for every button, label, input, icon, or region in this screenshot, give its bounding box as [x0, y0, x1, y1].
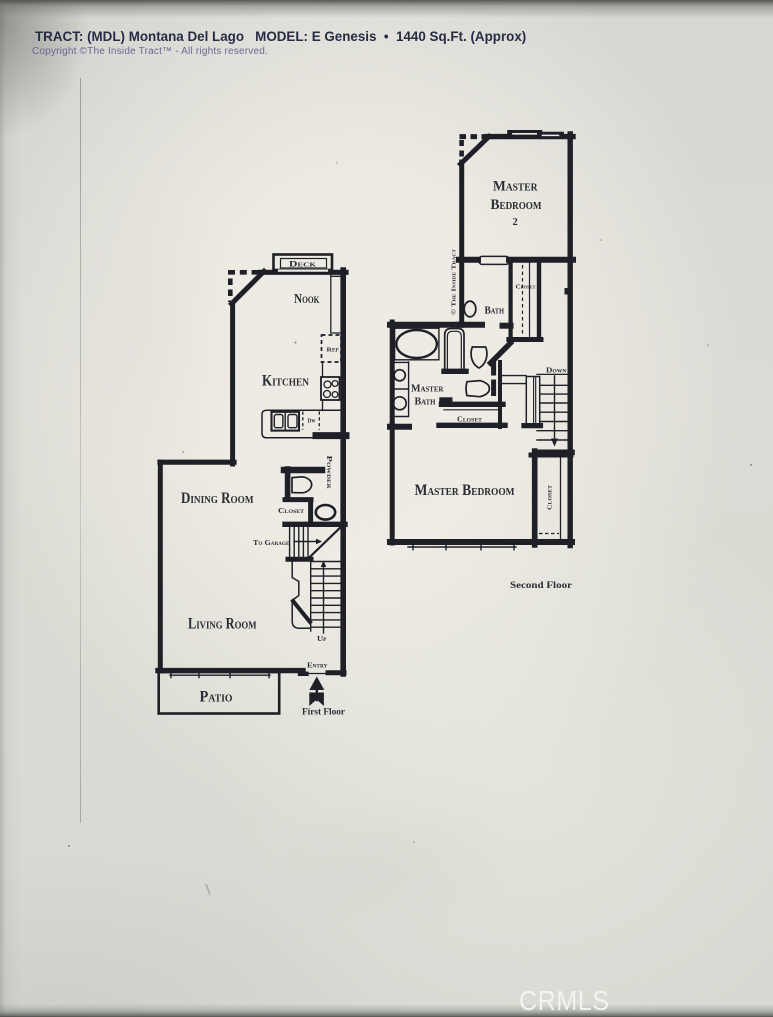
- svg-text:Dw: Dw: [308, 417, 316, 424]
- svg-text:Closet: Closet: [516, 284, 536, 291]
- svg-text:Master Bedroom: Master Bedroom: [415, 482, 516, 499]
- svg-text:Master: Master: [493, 178, 538, 194]
- svg-text:Bedroom: Bedroom: [491, 197, 543, 213]
- svg-text:Ref: Ref: [327, 346, 340, 353]
- svg-text:Patio: Patio: [200, 687, 233, 706]
- svg-text:Master: Master: [411, 384, 444, 395]
- svg-text:Entry: Entry: [307, 661, 328, 670]
- svg-text:Second Floor: Second Floor: [510, 581, 573, 591]
- svg-text:To Garage: To Garage: [253, 538, 290, 547]
- svg-text:Powder: Powder: [325, 456, 334, 490]
- svg-text:Down: Down: [546, 366, 567, 375]
- svg-text:© The Inside Tract: © The Inside Tract: [451, 249, 458, 315]
- svg-text:Up: Up: [317, 634, 327, 643]
- svg-text:Kitchen: Kitchen: [262, 373, 309, 390]
- svg-text:Living Room: Living Room: [188, 615, 257, 632]
- svg-text:Closet: Closet: [457, 416, 483, 424]
- svg-text:Deck: Deck: [289, 260, 316, 269]
- svg-text:Nook: Nook: [294, 291, 320, 306]
- svg-text:2: 2: [513, 217, 518, 228]
- svg-text:First Floor: First Floor: [302, 708, 346, 718]
- svg-text:Closet: Closet: [547, 484, 554, 510]
- svg-text:Closet: Closet: [278, 506, 305, 515]
- svg-text:Bath: Bath: [485, 306, 505, 317]
- svg-text:Bath: Bath: [415, 396, 437, 407]
- svg-text:Dining Room: Dining Room: [181, 490, 254, 507]
